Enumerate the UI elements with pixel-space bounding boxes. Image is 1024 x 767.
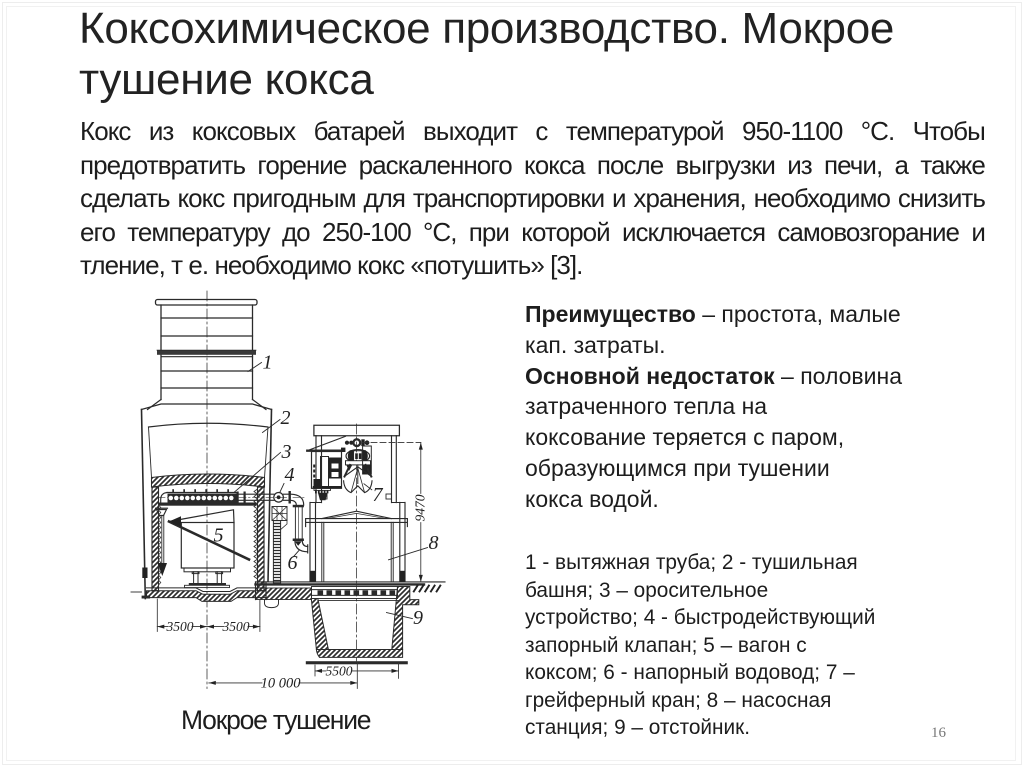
- svg-text:3500: 3500: [166, 619, 194, 634]
- svg-text:3500: 3500: [222, 619, 250, 634]
- svg-text:4: 4: [285, 464, 295, 486]
- svg-text:6: 6: [288, 552, 298, 574]
- svg-text:9: 9: [413, 607, 423, 629]
- svg-text:8: 8: [429, 532, 439, 554]
- svg-text:9470: 9470: [413, 494, 428, 521]
- svg-text:10 000: 10 000: [261, 675, 302, 691]
- svg-text:2: 2: [281, 407, 291, 429]
- svg-text:5: 5: [214, 525, 224, 547]
- svg-text:7: 7: [373, 484, 384, 506]
- svg-text:1: 1: [263, 352, 273, 374]
- svg-text:3: 3: [281, 441, 292, 463]
- svg-text:5500: 5500: [326, 663, 353, 678]
